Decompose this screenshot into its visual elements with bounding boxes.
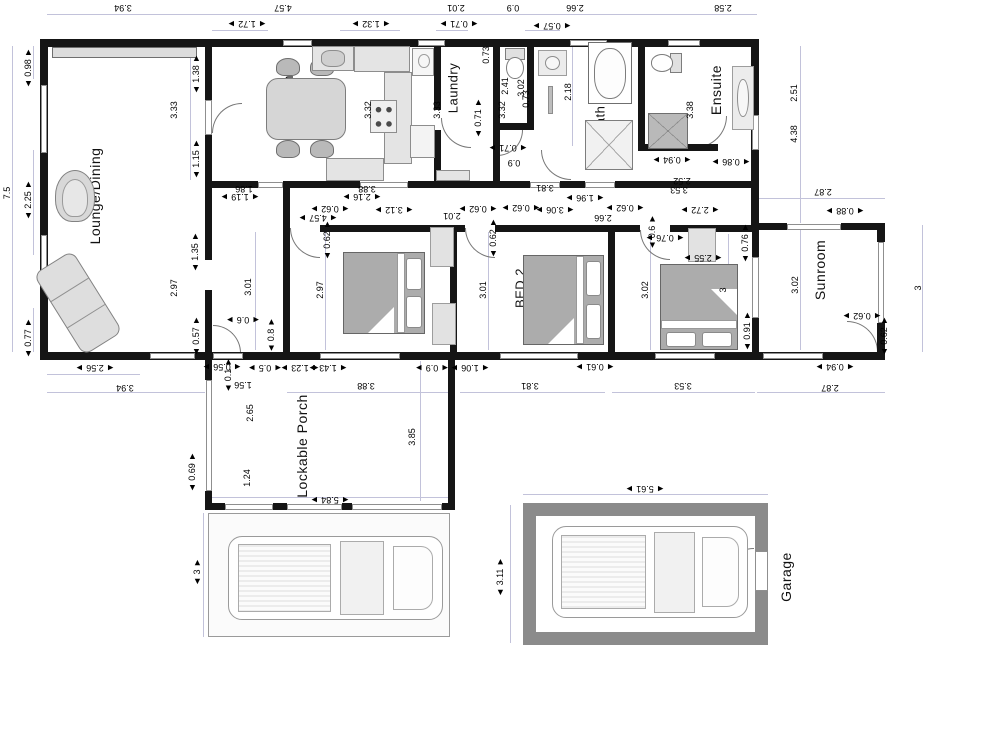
window [752,257,759,318]
toilet [502,48,526,78]
dimension-label: ◄ 2.16 ► [342,192,382,202]
dimension-extension-line [340,30,400,31]
window [41,85,47,153]
window [755,551,768,591]
dimension-extension-line [523,494,768,495]
dimension-label: ◄ 1.32 ► [351,19,391,29]
dimension-label: ◄ 2.25 ► [23,180,33,220]
garage-wall [523,503,768,516]
dimension-label: ◄ 0.62 ► [322,220,332,260]
dimension-label: 2.18 [563,83,573,101]
dimension-extension-line [33,46,34,79]
counter [354,46,410,72]
shower [585,120,633,170]
rail [548,86,553,114]
bed-pillow [586,304,602,339]
dimension-label: ◄ 3.11 ► [495,557,505,597]
dimension-extension-line [800,230,801,350]
dimension-label: 3.33 [432,101,442,119]
dimension-label: 2.58 [714,3,732,13]
bed [523,255,604,345]
dimension-extension-line [420,361,421,501]
wall [442,503,455,510]
dimension-label: ◄ 1.72 ► [227,19,267,29]
dimension-label: 3.53 [670,185,688,195]
dimension-label: ◄ 0.76 ► [740,223,750,263]
bed-sheet [576,256,584,344]
dimension-label: ◄ 0.9 ► [414,363,449,373]
garage-wall [755,591,768,645]
dimension-label: 3.32 [363,101,373,119]
dimension-label: 3.01 [478,281,488,299]
dimension-label: 0.73 [481,46,491,64]
wall [608,225,615,352]
dimension-label: ◄ 0.62 ► [879,316,889,356]
dimension-extension-line [33,308,34,352]
dimension-extension-line [47,14,757,15]
wall [408,181,530,188]
dimension-label: ◄ 0.57 ► [191,316,201,356]
dimension-extension-line [612,392,755,393]
bed-pillow [406,296,422,328]
dimension-label: 2.66 [594,213,612,223]
dimension-label: ◄ 1.19 ► [220,192,260,202]
dimension-label: ◄ 3 ► [192,558,202,586]
wall [493,123,534,130]
bed-pillow [666,332,696,347]
dimension-label: ◄ 0.71 ► [488,143,528,153]
car-tray [238,544,332,611]
dimension-extension-line [255,232,256,350]
bed-fold [548,318,574,344]
dimension-label: 3.38 [685,101,695,119]
car-hood [702,537,739,607]
dimension-extension-line [47,374,140,375]
dimension-label: 3.32 [497,101,507,119]
dimension-label: ◄ 1.15 ► [191,139,201,179]
dimension-label: ◄ 0.6 ► [647,214,657,249]
dimension-label: 0.9 [508,158,521,168]
dimension-label: 7.5 [2,187,12,200]
dimension-label: 3.02 [790,276,800,294]
window [258,182,283,188]
dimension-label: ◄ 2.56 ► [75,363,115,373]
door-swing [212,103,242,133]
wall [560,181,585,188]
wall [205,39,212,100]
window [655,353,715,359]
stove [370,100,397,133]
door-swing [847,321,878,352]
dimension-label: 0.73 [521,90,531,108]
dimension-label: 3.53 [674,381,692,391]
wall [273,503,287,510]
dimension-extension-line [757,198,885,199]
chair [276,140,300,158]
fridge [410,125,435,158]
bed [660,264,738,350]
dimension-label: ◄ 1.96 ► [565,193,605,203]
sink [312,46,354,71]
bed-pillow [702,332,732,347]
room-label-garage: Garage [778,552,794,602]
bed-pillow [586,261,602,296]
dimension-extension-line [287,392,450,393]
dimension-label: ◄ 0.61 ► [575,362,615,372]
wardrobe [432,303,456,345]
dimension-label: ◄ 0.71 ► [439,19,479,29]
dimension-extension-line [12,46,13,352]
bed [343,252,425,334]
dimension-label: 3.81 [521,381,539,391]
dimension-extension-line [460,392,605,393]
window [206,380,212,491]
dimension-label: 2.66 [566,3,584,13]
garage-wall [523,632,768,645]
room-label-laundry: Laundry [446,63,461,113]
bed-fold [368,307,394,333]
dimension-label: 2.97 [169,279,179,297]
dimension-label: ◄ 0.62 ► [605,203,645,213]
window [150,353,195,359]
wall [752,231,759,257]
dimension-label: ◄ 0.57 ► [532,21,572,31]
dimension-label: 2.65 [245,404,255,422]
wall [527,46,534,130]
dimension-label: 2.01 [443,211,461,221]
dimension-label: 3.01 [243,278,253,296]
dimension-label: ◄ 0.62 ► [501,203,541,213]
dimension-label: ◄ 1.35 ► [190,232,200,272]
wall [283,188,290,225]
window [205,100,212,135]
dimension-extension-line [510,505,511,643]
tub [588,42,632,104]
garage-wall [523,503,536,645]
dimension-label: ◄ 5.61 ► [625,484,665,494]
dimension-label: ◄ 0.1 ► [223,357,233,392]
wall [759,223,787,230]
dimension-label: 3.81 [536,183,554,193]
wall [283,181,360,188]
wall [448,359,455,510]
window [225,504,273,510]
window [787,224,841,230]
wall [205,181,212,260]
door-swing [441,118,471,148]
dimension-label: ◄ 0.8 ► [266,317,276,352]
car-hood [393,546,433,610]
room-label-lockable-porch: Lockable Porch [294,394,310,498]
car [552,526,748,618]
room-label-sunroom: Sunroom [812,240,828,300]
dimension-extension-line [203,513,204,637]
dimension-extension-line [212,30,268,31]
dimension-label: 3.94 [114,3,132,13]
dimension-extension-line [800,46,801,223]
dimension-label: 0.9 [507,3,520,13]
car-cab [654,532,695,613]
dimension-label: 3.94 [116,383,134,393]
window [283,40,312,46]
dimension-label: 3.33 [169,101,179,119]
dimension-label: ◄ 0.71 ► [473,98,483,138]
wall [638,46,645,151]
wall [877,223,885,242]
window [418,40,445,46]
dimension-label: ◄ 1.43 ► [308,363,348,373]
dimension-label: ◄ 0.62 ► [488,218,498,258]
dimension-label: ◄ 0.56 ► [202,362,242,372]
dimension-label: ◄ 5.84 ► [310,495,350,505]
dimension-label: ◄ 0.62 ► [458,204,498,214]
floor-plan: 3.944.572.010.92.662.58◄ 1.72 ►◄ 1.32 ►◄… [0,0,989,749]
room-label-ensuite: Ensuite [708,65,724,115]
dimension-label: 1.56 [234,380,252,390]
dimension-label: 3 [718,287,728,292]
washer [412,48,434,76]
dimension-label: ◄ 0.6 ► [225,315,260,325]
window [320,353,400,359]
table [266,78,346,140]
dimension-label: ◄ 0.86 ► [711,157,751,167]
toilet [652,50,682,74]
door-swing [541,150,571,180]
wall [752,318,759,352]
dimension-extension-line [33,150,34,255]
wardrobe [430,227,454,267]
wall [205,503,225,510]
dimension-label: ◄ 4.57 ► [298,213,338,223]
dimension-label: ◄ 0.5 ► [247,363,282,373]
vanity [732,66,754,130]
dimension-label: ◄ 0.94 ► [652,155,692,165]
dimension-label: ◄ 2.55 ► [683,253,723,263]
door-swing [213,325,241,353]
window [352,504,442,510]
dimension-label: 1.24 [242,469,252,487]
dimension-label: 4.57 [274,3,292,13]
dimension-extension-line [436,30,468,31]
armchair [55,170,95,222]
dimension-label: ◄ 0.98 ► [23,48,33,88]
dimension-label: 2.51 [789,84,799,102]
dimension-label: ◄ 1.38 ► [191,54,201,94]
shower-dark [648,113,688,149]
car-cab [340,541,385,615]
dimension-label: 3.02 [640,281,650,299]
counter [326,158,384,181]
window-bar [52,47,197,58]
wall [205,290,212,352]
dimension-label: ◄ 0.94 ► [815,362,855,372]
dimension-label: 2.87 [814,187,832,197]
dimension-label: ◄ 3.12 ► [374,205,414,215]
chair [276,58,300,76]
dimension-label: ◄ 1.06 ► [450,363,490,373]
window [763,353,823,359]
dimension-label: ◄ 0.62 ► [842,311,882,321]
window [585,182,615,188]
garage-wall [755,503,768,551]
chair [310,140,334,158]
window [500,353,578,359]
bed-sheet [661,320,737,328]
dimension-label: 2.41 [500,77,510,95]
dimension-label: 2.01 [447,3,465,13]
door-swing [290,228,320,258]
dimension-label: ◄ 0.69 ► [187,452,197,492]
dimension-label: 3.88 [357,381,375,391]
car-tray [561,535,646,609]
bed-pillow [406,258,422,290]
dimension-label: ◄ 2.72 ► [680,205,720,215]
car [228,536,443,620]
bed-sheet [397,253,405,333]
wall [283,225,290,352]
vanity [538,50,567,76]
dimension-label: 3.85 [407,428,417,446]
dimension-label: ◄ 0.88 ► [825,206,865,216]
window [668,40,700,46]
wall [205,135,212,181]
dimension-label: ◄ 0.91 ► [742,311,752,351]
wall [495,225,640,232]
dimension-label: 2.97 [315,281,325,299]
dimension-label: 2.87 [821,383,839,393]
dimension-label: 4.38 [789,125,799,143]
dimension-label: 3 [913,285,923,290]
dimension-label: ◄ 0.77 ► [23,318,33,358]
bench [436,170,470,181]
